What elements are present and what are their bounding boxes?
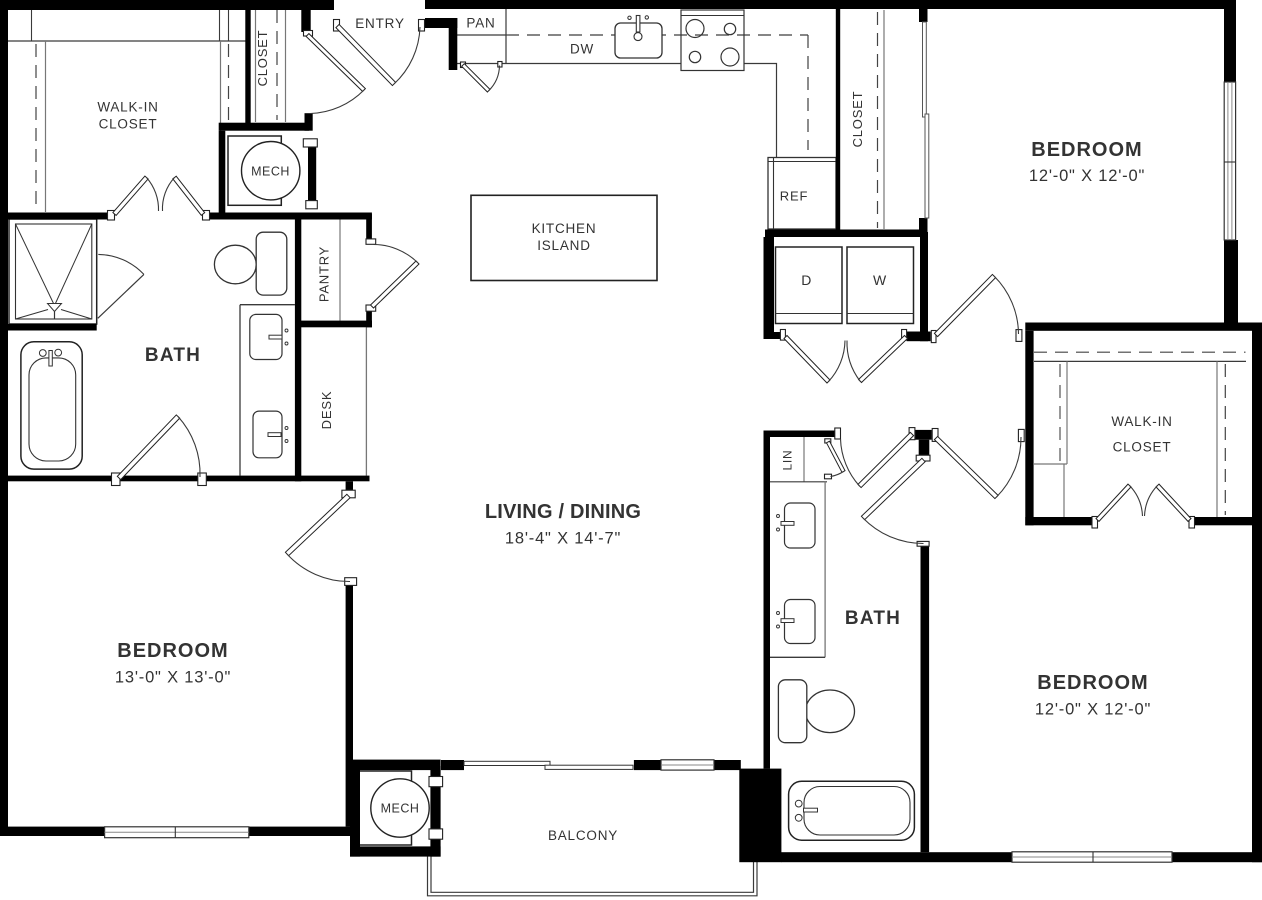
svg-text:BATH: BATH	[845, 608, 901, 629]
svg-text:BEDROOM: BEDROOM	[1037, 672, 1148, 694]
svg-text:13'-0" X 13'-0": 13'-0" X 13'-0"	[115, 669, 231, 687]
svg-text:BALCONY: BALCONY	[548, 828, 618, 843]
svg-text:PAN: PAN	[466, 16, 495, 31]
svg-text:WALK-IN: WALK-IN	[1111, 414, 1172, 429]
svg-text:12'-0" X 12'-0": 12'-0" X 12'-0"	[1029, 167, 1145, 185]
svg-text:PANTRY: PANTRY	[317, 246, 332, 302]
svg-text:DESK: DESK	[319, 391, 334, 430]
svg-text:CLOSET: CLOSET	[255, 30, 270, 87]
svg-text:ISLAND: ISLAND	[537, 238, 591, 253]
svg-text:BEDROOM: BEDROOM	[117, 640, 228, 662]
svg-text:12'-0" X 12'-0": 12'-0" X 12'-0"	[1035, 701, 1151, 719]
svg-text:18'-4" X 14'-7": 18'-4" X 14'-7"	[505, 530, 621, 548]
svg-text:MECH: MECH	[251, 165, 290, 179]
svg-text:MECH: MECH	[381, 802, 420, 816]
svg-text:CLOSET: CLOSET	[99, 117, 158, 132]
svg-text:W: W	[873, 272, 887, 288]
svg-text:CLOSET: CLOSET	[1113, 440, 1172, 455]
svg-text:LIN: LIN	[781, 449, 795, 470]
svg-text:ENTRY: ENTRY	[355, 16, 405, 31]
svg-text:BATH: BATH	[145, 345, 201, 366]
svg-text:WALK-IN: WALK-IN	[97, 100, 158, 115]
svg-text:REF: REF	[780, 189, 808, 204]
svg-text:BEDROOM: BEDROOM	[1031, 139, 1142, 161]
svg-text:DW: DW	[570, 42, 594, 57]
svg-text:CLOSET: CLOSET	[850, 91, 865, 148]
svg-text:D: D	[801, 272, 812, 288]
svg-text:KITCHEN: KITCHEN	[532, 221, 597, 236]
svg-text:LIVING / DINING: LIVING / DINING	[485, 501, 641, 523]
